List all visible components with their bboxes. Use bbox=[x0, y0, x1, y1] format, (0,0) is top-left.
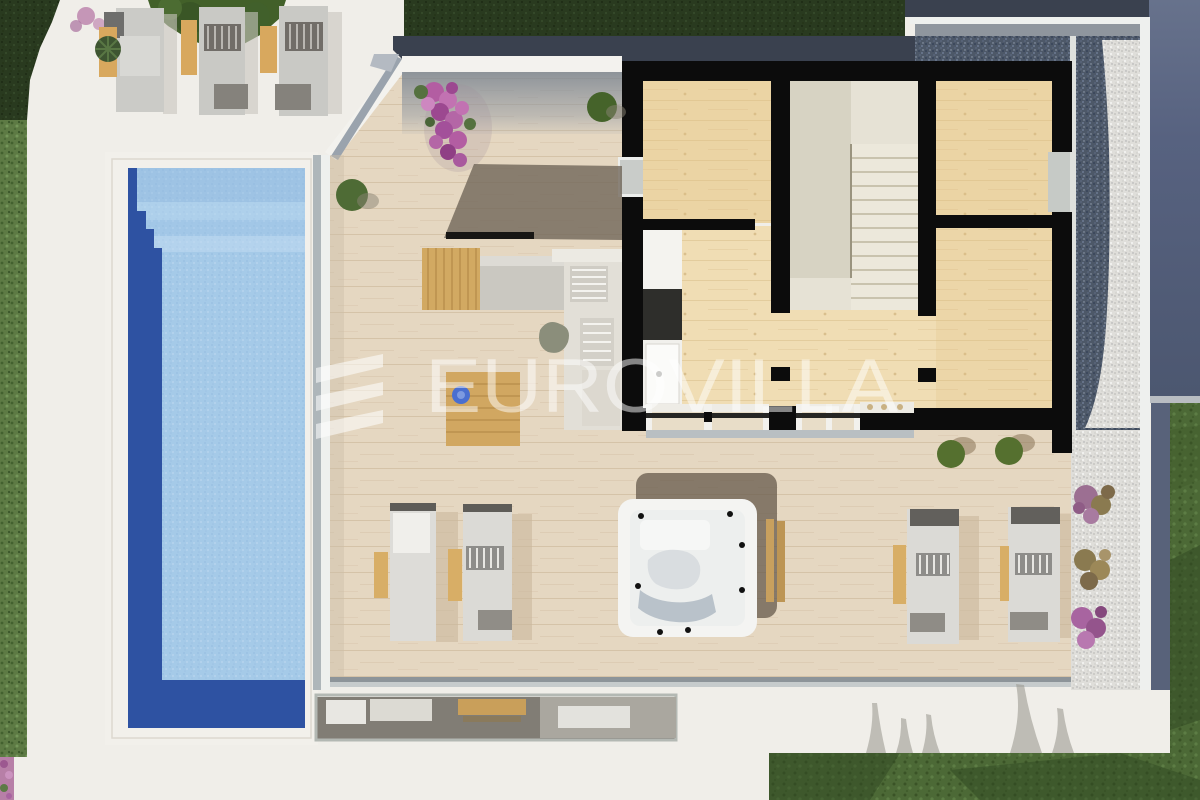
svg-text:EUROVILLA: EUROVILLA bbox=[425, 344, 898, 429]
